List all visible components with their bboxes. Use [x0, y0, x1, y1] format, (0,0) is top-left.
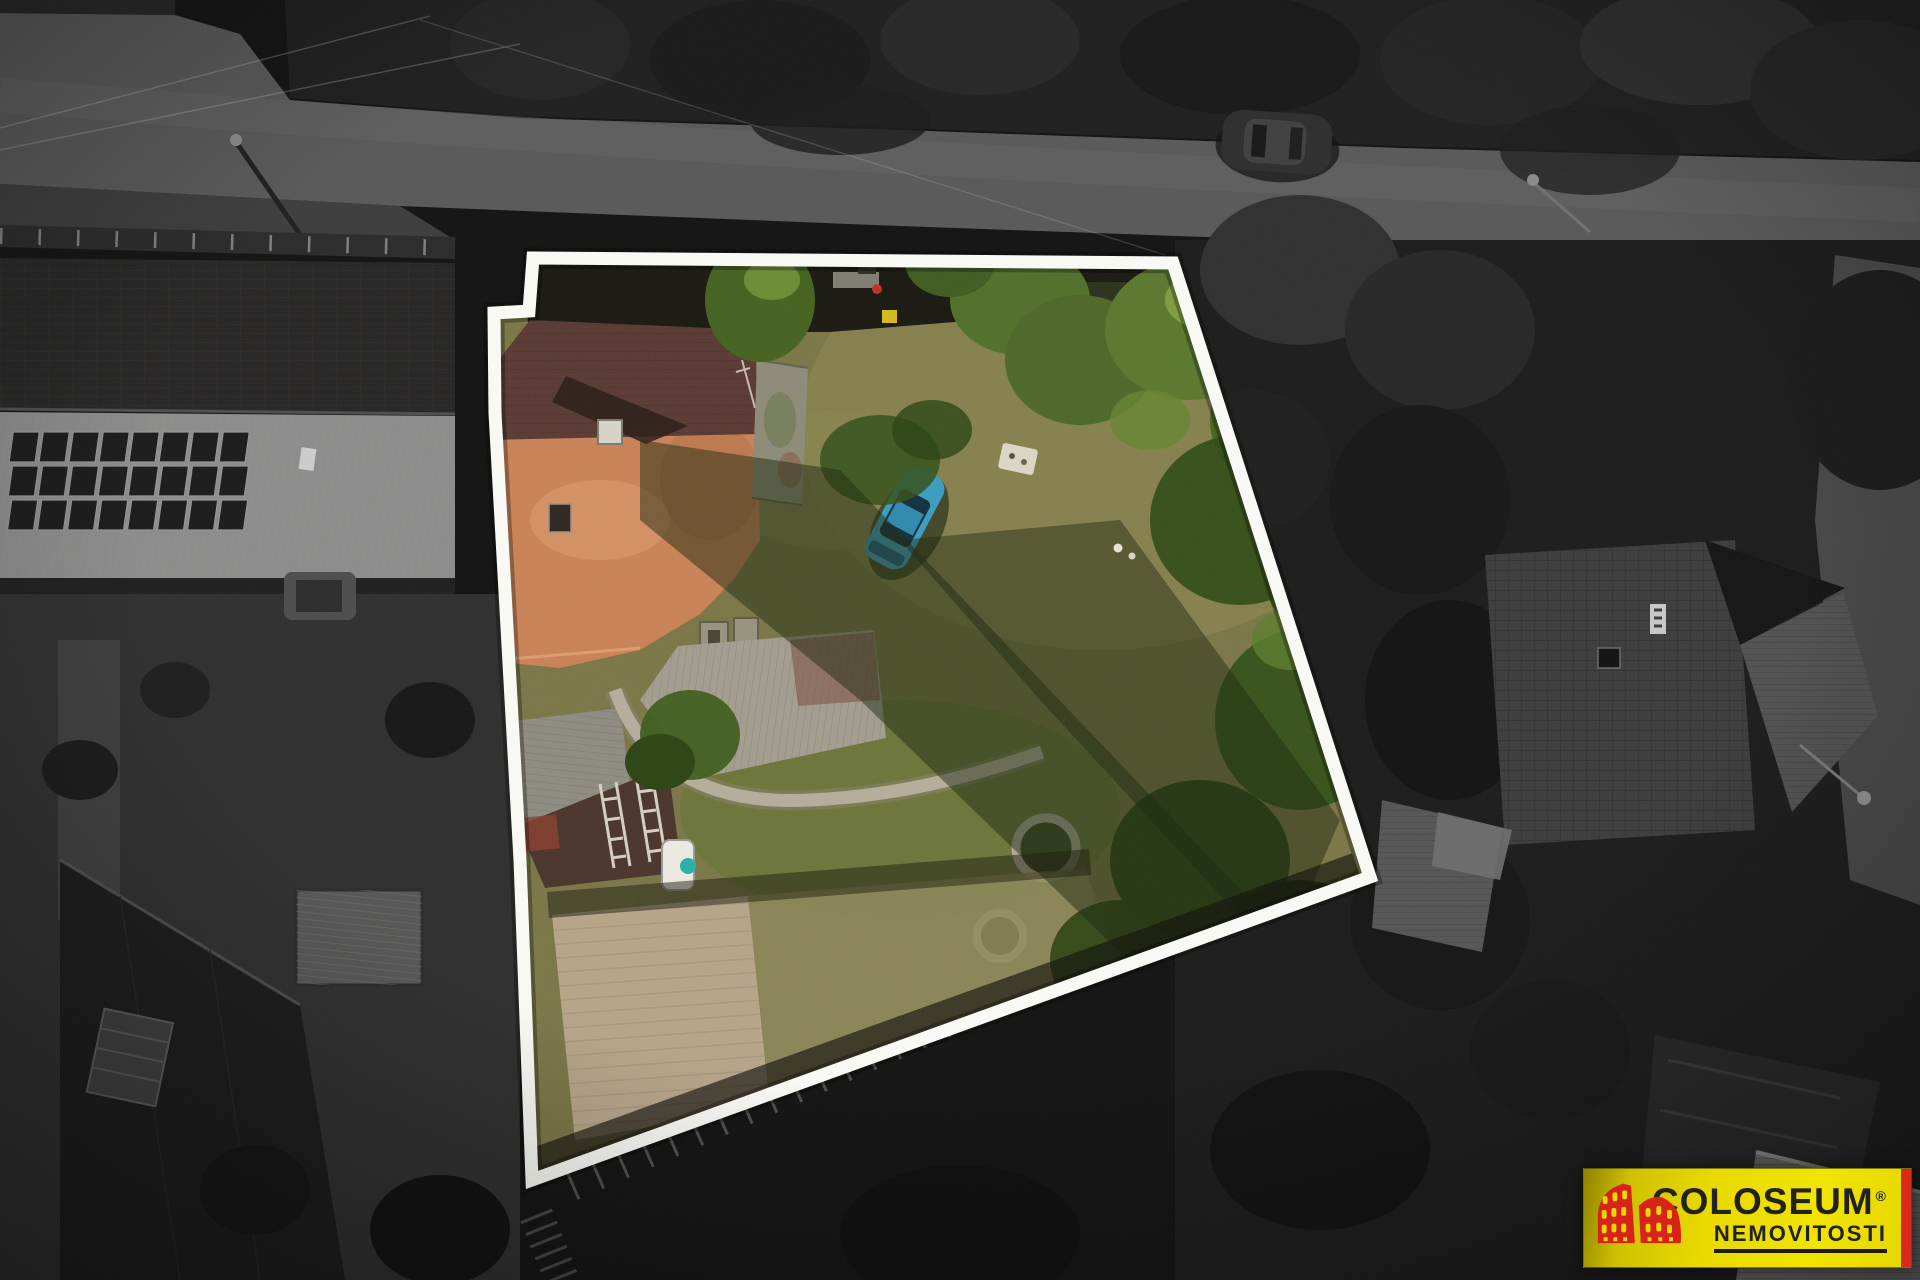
colosseum-icon	[1592, 1169, 1690, 1247]
brand-watermark: COLOSEUM® NEMOVITOSTI	[1583, 1168, 1912, 1268]
registered-mark: ®	[1876, 1188, 1887, 1204]
aerial-photo	[0, 0, 1920, 1280]
vignette	[0, 0, 1920, 1280]
aerial-photo-viewport: COLOSEUM® NEMOVITOSTI	[0, 0, 1920, 1280]
red-stripe	[1901, 1169, 1911, 1267]
brand-subtitle: NEMOVITOSTI	[1714, 1223, 1887, 1253]
